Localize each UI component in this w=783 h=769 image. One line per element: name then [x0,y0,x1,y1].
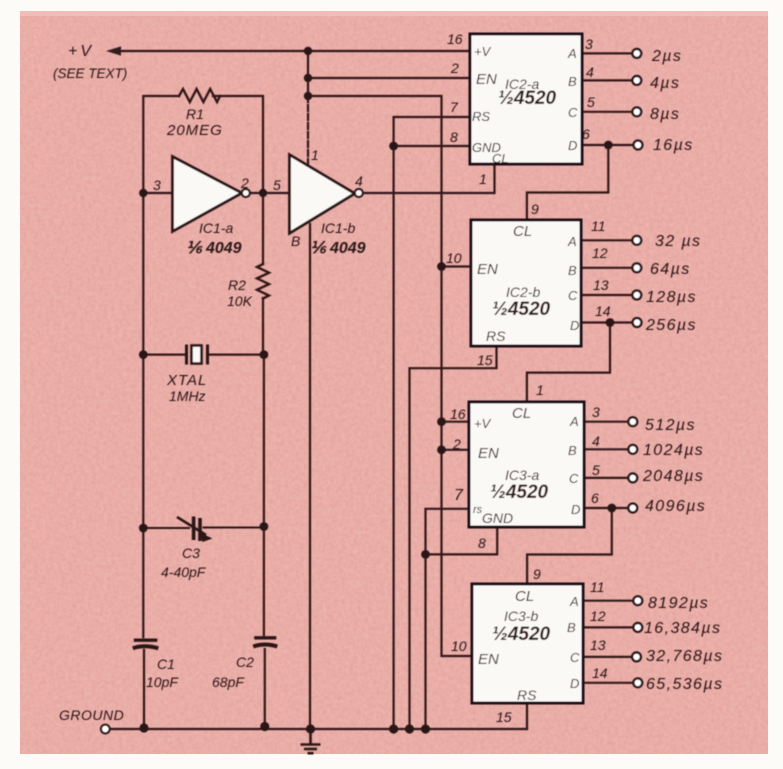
svg-text:128µs: 128µs [646,289,697,306]
svg-text:R1: R1 [186,106,204,122]
svg-text:4: 4 [586,64,594,80]
svg-text:3: 3 [585,36,593,52]
svg-text:½4520: ½4520 [492,299,551,320]
svg-text:32,768µs: 32,768µs [646,648,723,665]
svg-text:65,536µs: 65,536µs [646,676,723,693]
svg-text:1: 1 [479,171,487,187]
svg-text:CL: CL [492,151,509,166]
svg-text:A: A [569,594,579,609]
svg-text:16,384µs: 16,384µs [644,620,721,637]
svg-text:5: 5 [273,177,281,193]
svg-text:15: 15 [496,709,512,725]
svg-text:32 µs: 32 µs [655,233,701,250]
svg-text:9: 9 [533,566,541,582]
svg-text:5: 5 [592,462,600,478]
svg-text:9: 9 [531,201,539,217]
svg-text:B: B [568,263,577,278]
svg-text:64µs: 64µs [650,261,691,278]
svg-text:B: B [568,74,577,89]
svg-text:C: C [569,471,579,486]
svg-text:11: 11 [591,218,606,234]
svg-text:C3: C3 [182,545,200,561]
svg-text:13: 13 [593,277,609,293]
svg-text:2048µs: 2048µs [642,468,704,485]
svg-text:IC2-b: IC2-b [506,284,540,300]
svg-text:10K: 10K [227,293,253,309]
svg-text:EN: EN [477,261,498,278]
svg-text:256µs: 256µs [645,317,697,334]
svg-text:GND: GND [482,510,513,526]
svg-text:6: 6 [591,490,599,506]
svg-text:(SEE TEXT): (SEE TEXT) [53,66,127,81]
svg-text:A: A [567,46,577,61]
svg-text:⅙ 4049: ⅙ 4049 [310,240,366,257]
svg-text:4µs: 4µs [650,75,680,92]
svg-text:IC3-b: IC3-b [504,608,538,624]
svg-text:EN: EN [478,651,499,668]
svg-text:R2: R2 [228,277,246,293]
svg-text:16: 16 [450,406,466,422]
svg-text:½4520: ½4520 [490,482,549,503]
svg-text:C: C [568,288,578,303]
svg-text:10: 10 [451,638,467,654]
svg-text:B: B [291,233,300,249]
svg-text:4096µs: 4096µs [645,498,706,515]
svg-text:1: 1 [536,382,544,398]
svg-text:3: 3 [592,404,600,420]
svg-text:RS: RS [517,687,537,703]
svg-text:10: 10 [446,250,462,266]
svg-text:3: 3 [153,177,161,193]
svg-text:IC3-a: IC3-a [505,467,539,483]
svg-text:4: 4 [355,173,363,189]
svg-text:7: 7 [450,99,459,115]
svg-text:15: 15 [477,352,493,368]
svg-text:1: 1 [311,147,319,163]
svg-text:D: D [570,318,579,333]
svg-text:C2: C2 [236,654,254,670]
svg-text:C1: C1 [157,656,175,672]
svg-text:CL: CL [513,223,532,240]
svg-text:2: 2 [450,60,459,76]
svg-text:C: C [570,650,580,665]
svg-text:D: D [571,502,580,517]
svg-text:13: 13 [590,637,606,653]
svg-text:½4520: ½4520 [492,624,551,645]
svg-text:A: A [567,234,577,249]
svg-text:11: 11 [590,579,605,595]
svg-text:2: 2 [240,175,249,191]
svg-text:CL: CL [512,405,531,422]
svg-text:D: D [568,138,577,153]
svg-text:1024µs: 1024µs [643,442,704,459]
svg-text:+V: +V [474,416,492,431]
svg-text:7: 7 [454,487,464,504]
svg-text:A: A [569,414,579,429]
svg-text:8: 8 [450,129,458,145]
svg-text:4-40pF: 4-40pF [161,564,207,580]
svg-text:XTAL: XTAL [166,372,207,389]
svg-text:68pF: 68pF [212,674,245,690]
svg-text:8192µs: 8192µs [648,595,709,612]
svg-text:8µs: 8µs [650,106,680,123]
svg-text:16: 16 [447,31,463,47]
svg-text:8: 8 [478,535,486,551]
svg-text:IC1-b: IC1-b [321,220,355,236]
svg-text:+V: +V [68,43,94,60]
svg-text:⅙ 4049: ⅙ 4049 [186,240,242,257]
svg-text:512µs: 512µs [645,417,696,434]
svg-text:2: 2 [452,436,461,452]
svg-text:4: 4 [592,433,600,449]
svg-text:B: B [567,620,576,635]
svg-text:IC1-a: IC1-a [199,220,233,236]
svg-text:14: 14 [595,303,611,319]
svg-text:20MEG: 20MEG [166,122,223,139]
svg-text:6: 6 [582,126,590,142]
svg-text:5: 5 [587,94,595,110]
svg-text:D: D [570,676,579,691]
svg-text:+V: +V [474,44,492,59]
svg-text:RS: RS [486,328,506,344]
svg-text:12: 12 [590,608,606,624]
svg-text:EN: EN [476,71,497,88]
svg-text:½4520: ½4520 [498,88,557,109]
svg-text:10pF: 10pF [146,674,179,690]
svg-text:RS: RS [472,109,490,124]
svg-text:GROUND: GROUND [59,707,124,723]
svg-text:12: 12 [592,245,608,261]
svg-text:CL: CL [515,588,534,605]
svg-text:EN: EN [478,445,499,462]
svg-text:B: B [568,443,577,458]
svg-text:2µs: 2µs [651,48,682,65]
svg-text:C: C [568,105,578,120]
svg-text:16µs: 16µs [653,137,694,154]
svg-text:1MHz: 1MHz [169,388,206,404]
svg-text:14: 14 [592,665,608,681]
